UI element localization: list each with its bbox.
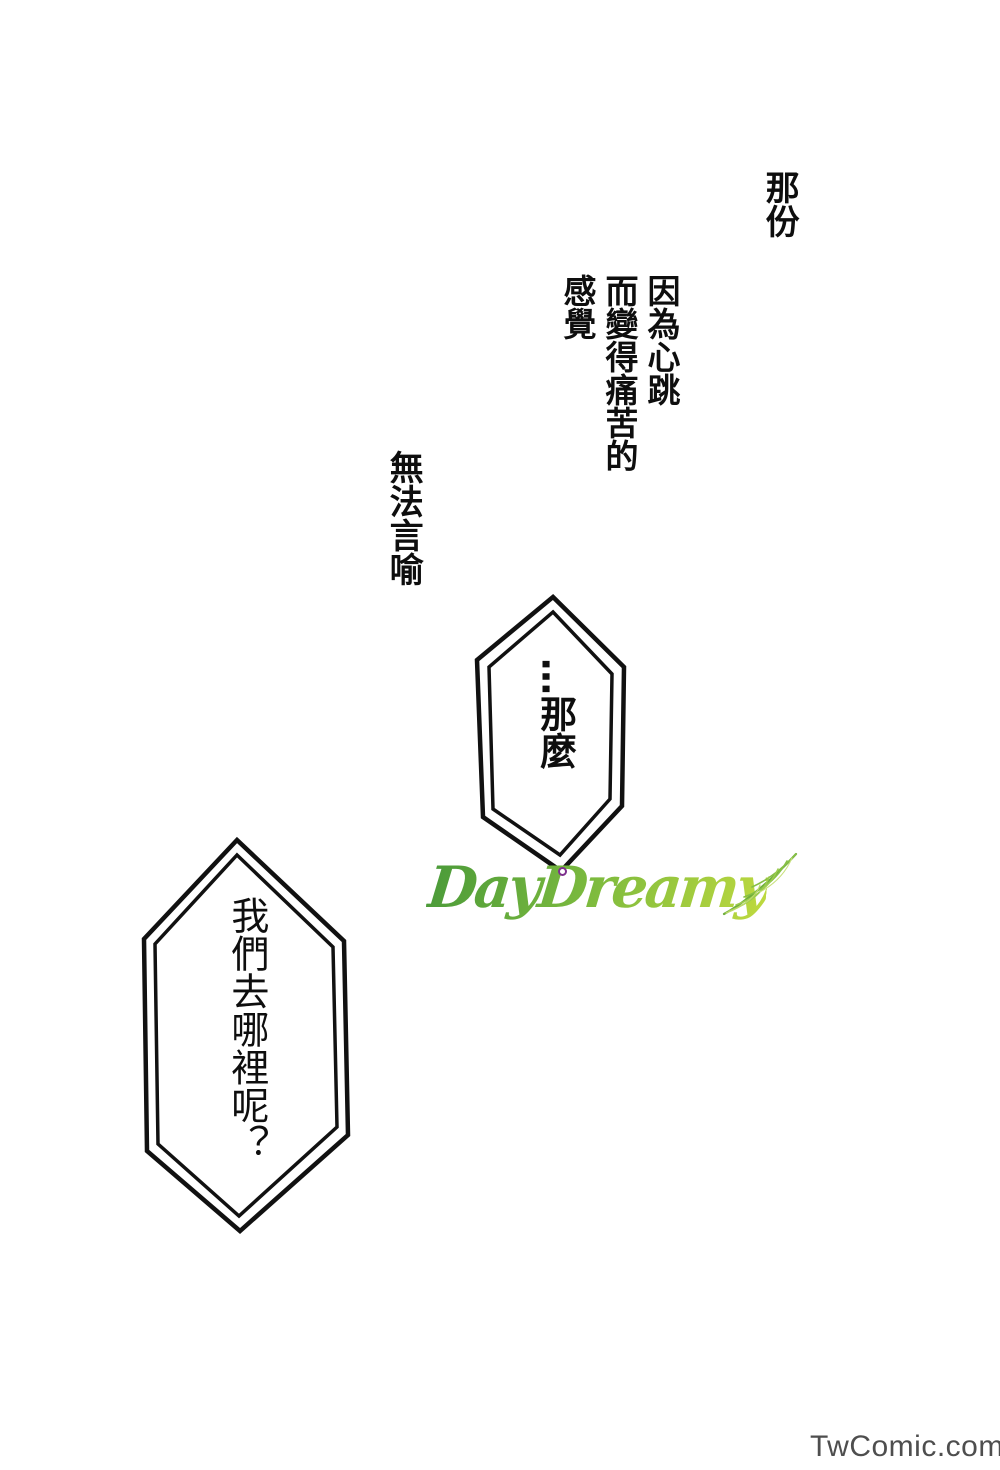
narration-line-1: 那份 xyxy=(759,170,799,238)
speech-bubble-2-text: 我們去哪裡呢？ xyxy=(224,896,269,1162)
daydreamy-logo-text: DayDreamy xyxy=(424,854,770,921)
narration-line-2-col-3: 感覺 xyxy=(556,274,598,504)
manga-page: 那份 因為心跳 而變得痛苦的 感覺 無法言喻 …那麼 DayDreamy xyxy=(0,0,1000,1470)
site-watermark: TwComic.com xyxy=(810,1430,1000,1464)
narration-line-3: 無法言喻 xyxy=(383,450,423,586)
speech-bubble-1-text: …那麼 xyxy=(533,658,577,769)
daydreamy-logo-accent-dot xyxy=(558,867,567,876)
narration-line-2: 因為心跳 而變得痛苦的 感覺 xyxy=(556,274,682,504)
narration-line-2-col-2: 而變得痛苦的 xyxy=(598,274,640,504)
wing-icon xyxy=(720,850,800,922)
daydreamy-logo: DayDreamy xyxy=(424,848,804,958)
narration-line-2-col-1: 因為心跳 xyxy=(640,274,682,504)
